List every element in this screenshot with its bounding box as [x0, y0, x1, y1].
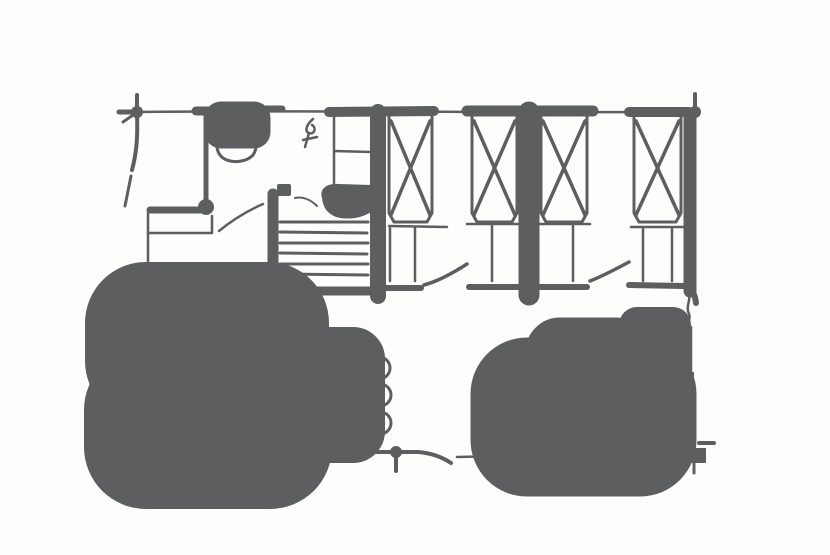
closet-outline: [334, 115, 371, 183]
bed-4-cross: [636, 121, 679, 215]
stair-tread-4: [280, 253, 367, 254]
vanity-outline: [149, 216, 212, 233]
floor-plan-figure: [0, 0, 830, 555]
small-dark-dot: [277, 184, 291, 196]
bed-3-cross: [543, 121, 585, 215]
dining-table: [310, 352, 360, 438]
bed-1-foot-line: [389, 226, 447, 227]
door-leaf-2: [590, 262, 629, 281]
toilet-tank: [221, 118, 254, 132]
stair-tread-2: [280, 232, 367, 233]
right-wall-shadow-bar: [677, 372, 694, 458]
bed-1-cross: [391, 121, 430, 215]
dark-fixture-blob: [321, 184, 371, 219]
right-wall-mark: [677, 326, 689, 352]
left-wall-upper-curve: [125, 176, 131, 206]
bathroom-door-arc: [219, 204, 263, 231]
left-wall-upper: [132, 114, 137, 170]
sofa-corner-section: [637, 325, 673, 443]
bed-1-step: [390, 227, 415, 281]
door-leaf-1: [424, 264, 467, 285]
bed-4-step: [643, 229, 672, 281]
bed-2-cross: [474, 121, 515, 215]
floor-plan-svg: [0, 0, 830, 555]
hall-symbol: [303, 119, 317, 147]
dot-curve: [295, 197, 317, 206]
